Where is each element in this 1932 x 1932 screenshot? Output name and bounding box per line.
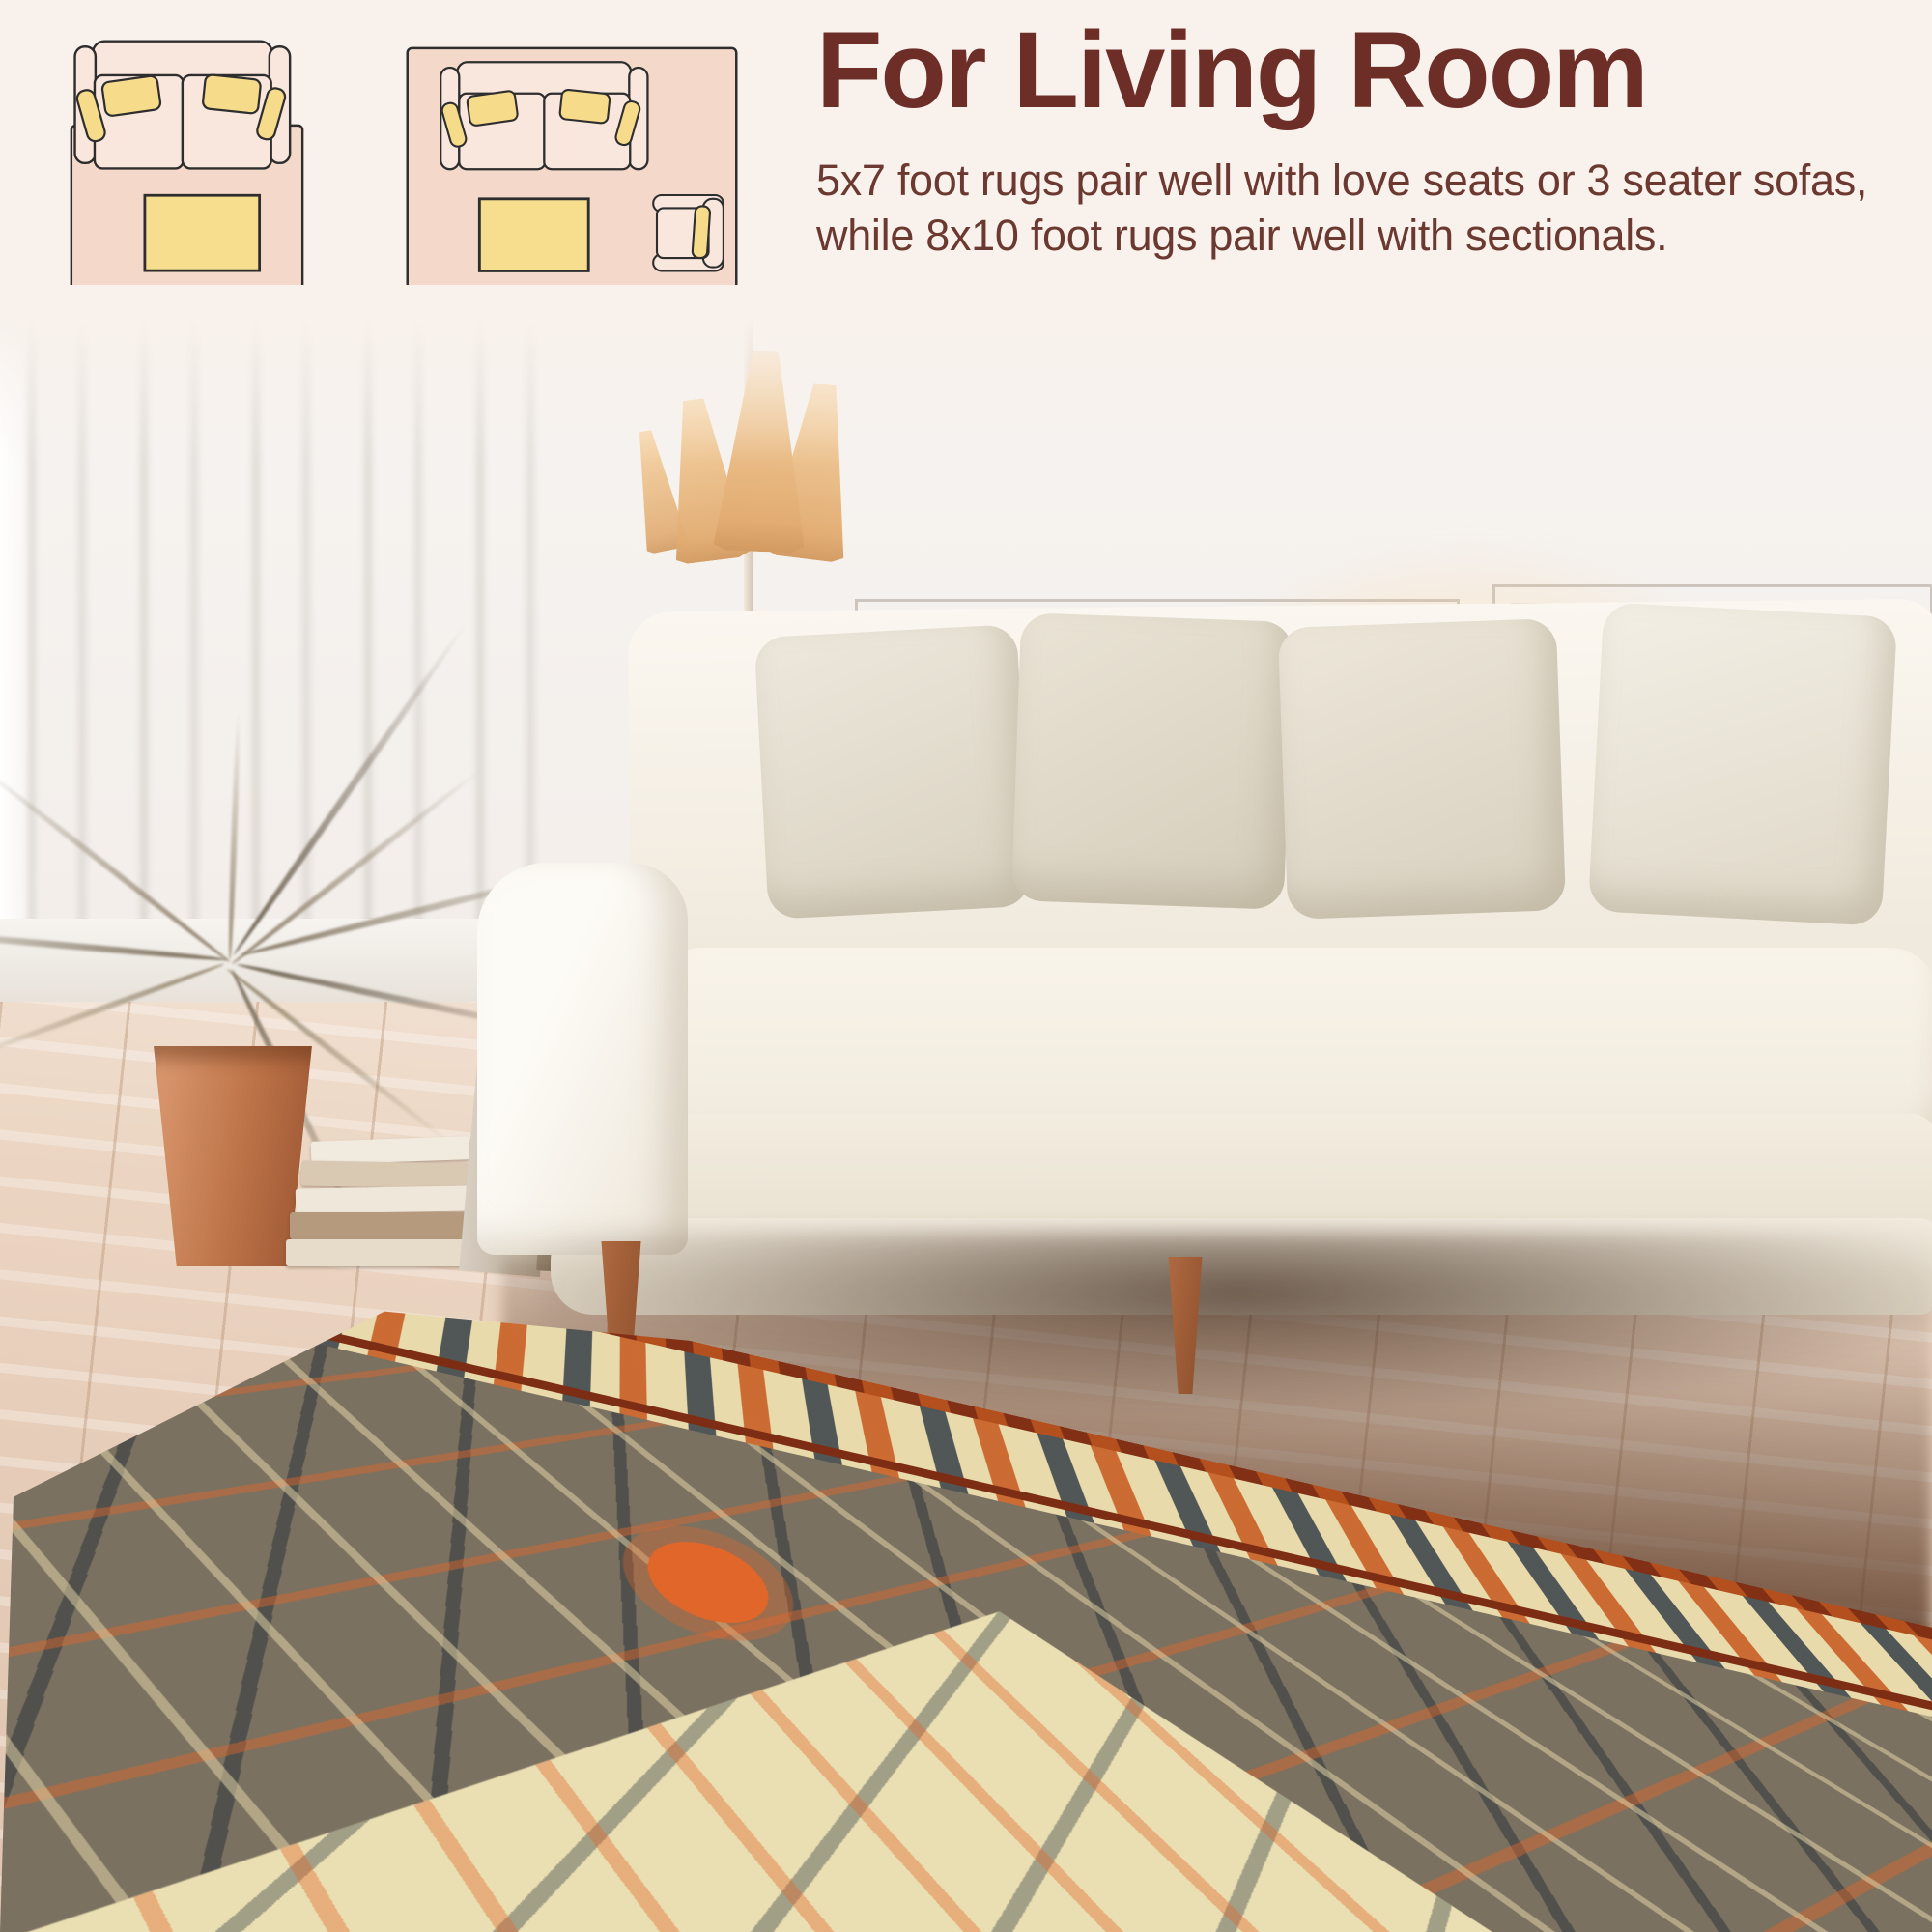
page-description: 5x7 foot rugs pair well with love seats … — [816, 153, 1922, 263]
book — [296, 1185, 471, 1213]
armchair-top-view-icon — [653, 195, 724, 270]
living-room-photo — [0, 285, 1932, 1932]
sofa-pillow — [1278, 618, 1566, 920]
sofa-pillow — [1588, 602, 1897, 925]
book — [286, 1239, 475, 1266]
coffee-table-icon — [145, 195, 260, 270]
header-block: For Living Room 5x7 foot rugs pair well … — [816, 14, 1922, 263]
rug-size-guide-banner: 5x7 — [0, 0, 1932, 1932]
sofa-armrest — [477, 863, 688, 1255]
sofa-pillow — [754, 624, 1032, 920]
page-title: For Living Room — [816, 14, 1922, 128]
sofa-pillow — [1011, 612, 1293, 910]
book — [290, 1212, 473, 1239]
top-fade-overlay — [0, 285, 1932, 464]
coffee-table-icon — [479, 199, 588, 271]
book — [301, 1160, 471, 1188]
